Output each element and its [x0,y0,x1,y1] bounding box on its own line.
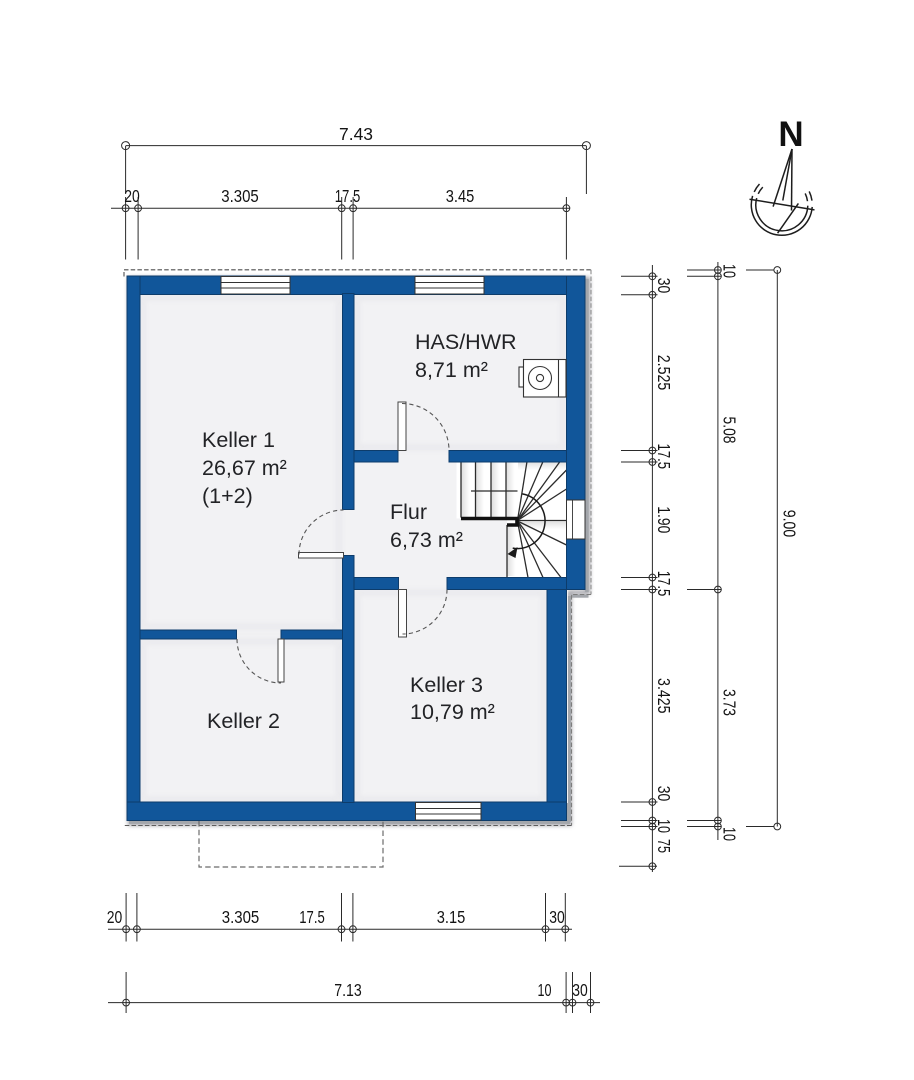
svg-text:5.08: 5.08 [720,417,740,444]
svg-text:1.90: 1.90 [654,506,674,533]
svg-text:HAS/HWR: HAS/HWR [415,330,517,354]
svg-text:3.45: 3.45 [446,186,475,206]
svg-text:10: 10 [720,827,740,841]
svg-text:17.5: 17.5 [654,444,674,470]
svg-text:26,67 m²: 26,67 m² [202,456,287,480]
svg-text:30: 30 [654,786,674,802]
svg-text:10,79 m²: 10,79 m² [410,700,495,724]
svg-text:7.13: 7.13 [334,980,362,1000]
svg-text:Keller 2: Keller 2 [207,709,280,733]
svg-text:2.525: 2.525 [654,355,674,391]
svg-text:10: 10 [538,980,552,1000]
svg-text:3.305: 3.305 [221,186,259,206]
svg-text:17.5: 17.5 [299,907,325,927]
svg-text:3.15: 3.15 [437,907,466,927]
svg-text:75: 75 [654,839,674,853]
svg-text:8,71 m²: 8,71 m² [415,358,488,382]
svg-text:10: 10 [654,819,674,833]
svg-text:7.43: 7.43 [339,124,373,144]
svg-text:9.00: 9.00 [779,510,799,538]
svg-text:Keller 1: Keller 1 [202,428,275,452]
svg-text:Keller 3: Keller 3 [410,673,483,697]
svg-text:3.73: 3.73 [720,689,740,716]
svg-text:10: 10 [720,264,740,278]
svg-text:N: N [778,115,803,154]
svg-text:6,73 m²: 6,73 m² [390,528,463,552]
svg-text:3.305: 3.305 [222,907,260,927]
svg-text:20: 20 [107,907,123,927]
svg-text:(1+2): (1+2) [202,484,253,508]
svg-text:30: 30 [572,980,588,1000]
svg-text:3.425: 3.425 [654,678,674,714]
svg-text:30: 30 [654,278,674,294]
svg-text:17.5: 17.5 [654,571,674,597]
svg-text:17.5: 17.5 [335,186,361,206]
svg-text:Flur: Flur [390,500,427,524]
svg-text:20: 20 [124,186,140,206]
svg-text:30: 30 [549,907,565,927]
